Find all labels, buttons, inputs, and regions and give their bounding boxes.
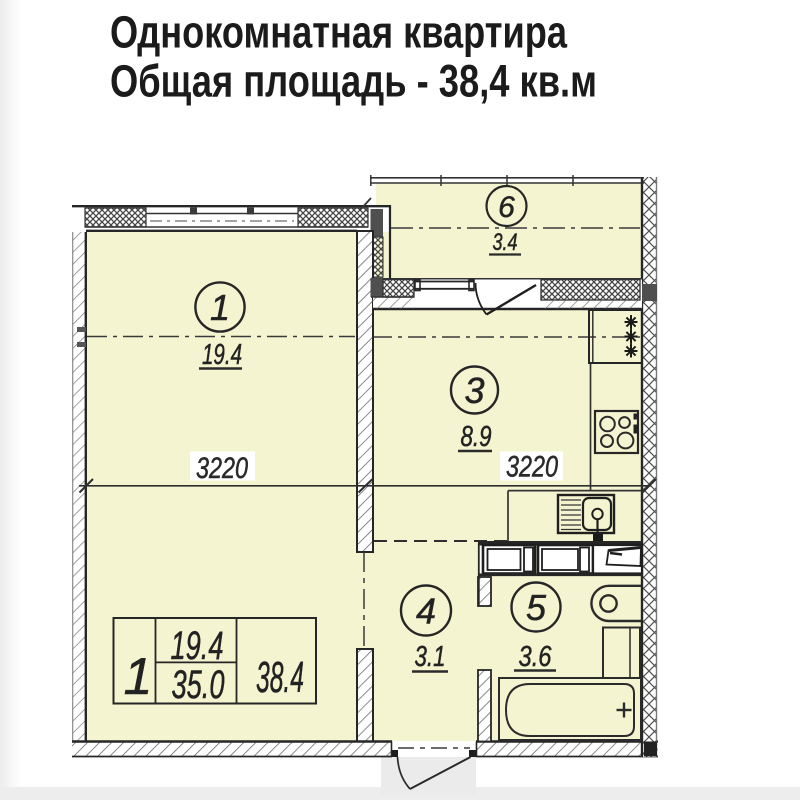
svg-text:5: 5 — [526, 587, 547, 628]
svg-text:6: 6 — [498, 191, 515, 224]
svg-text:8.9: 8.9 — [461, 421, 492, 453]
svg-text:3.4: 3.4 — [493, 229, 518, 256]
svg-text:3.1: 3.1 — [415, 641, 446, 673]
svg-text:35.0: 35.0 — [172, 663, 225, 707]
svg-text:19.4: 19.4 — [171, 624, 224, 668]
svg-text:3.6: 3.6 — [519, 641, 553, 673]
svg-text:19.4: 19.4 — [202, 339, 242, 371]
svg-text:Однокомнатная квартира: Однокомнатная квартира — [110, 7, 568, 58]
svg-text:Общая площадь - 38,4 кв.м: Общая площадь - 38,4 кв.м — [110, 56, 597, 107]
svg-text:1: 1 — [210, 287, 230, 328]
svg-text:38.4: 38.4 — [256, 653, 304, 702]
svg-text:3220: 3220 — [506, 451, 558, 484]
svg-text:4: 4 — [416, 591, 436, 632]
svg-text:3: 3 — [464, 370, 484, 411]
svg-text:3220: 3220 — [196, 452, 248, 485]
svg-text:1: 1 — [124, 648, 153, 706]
